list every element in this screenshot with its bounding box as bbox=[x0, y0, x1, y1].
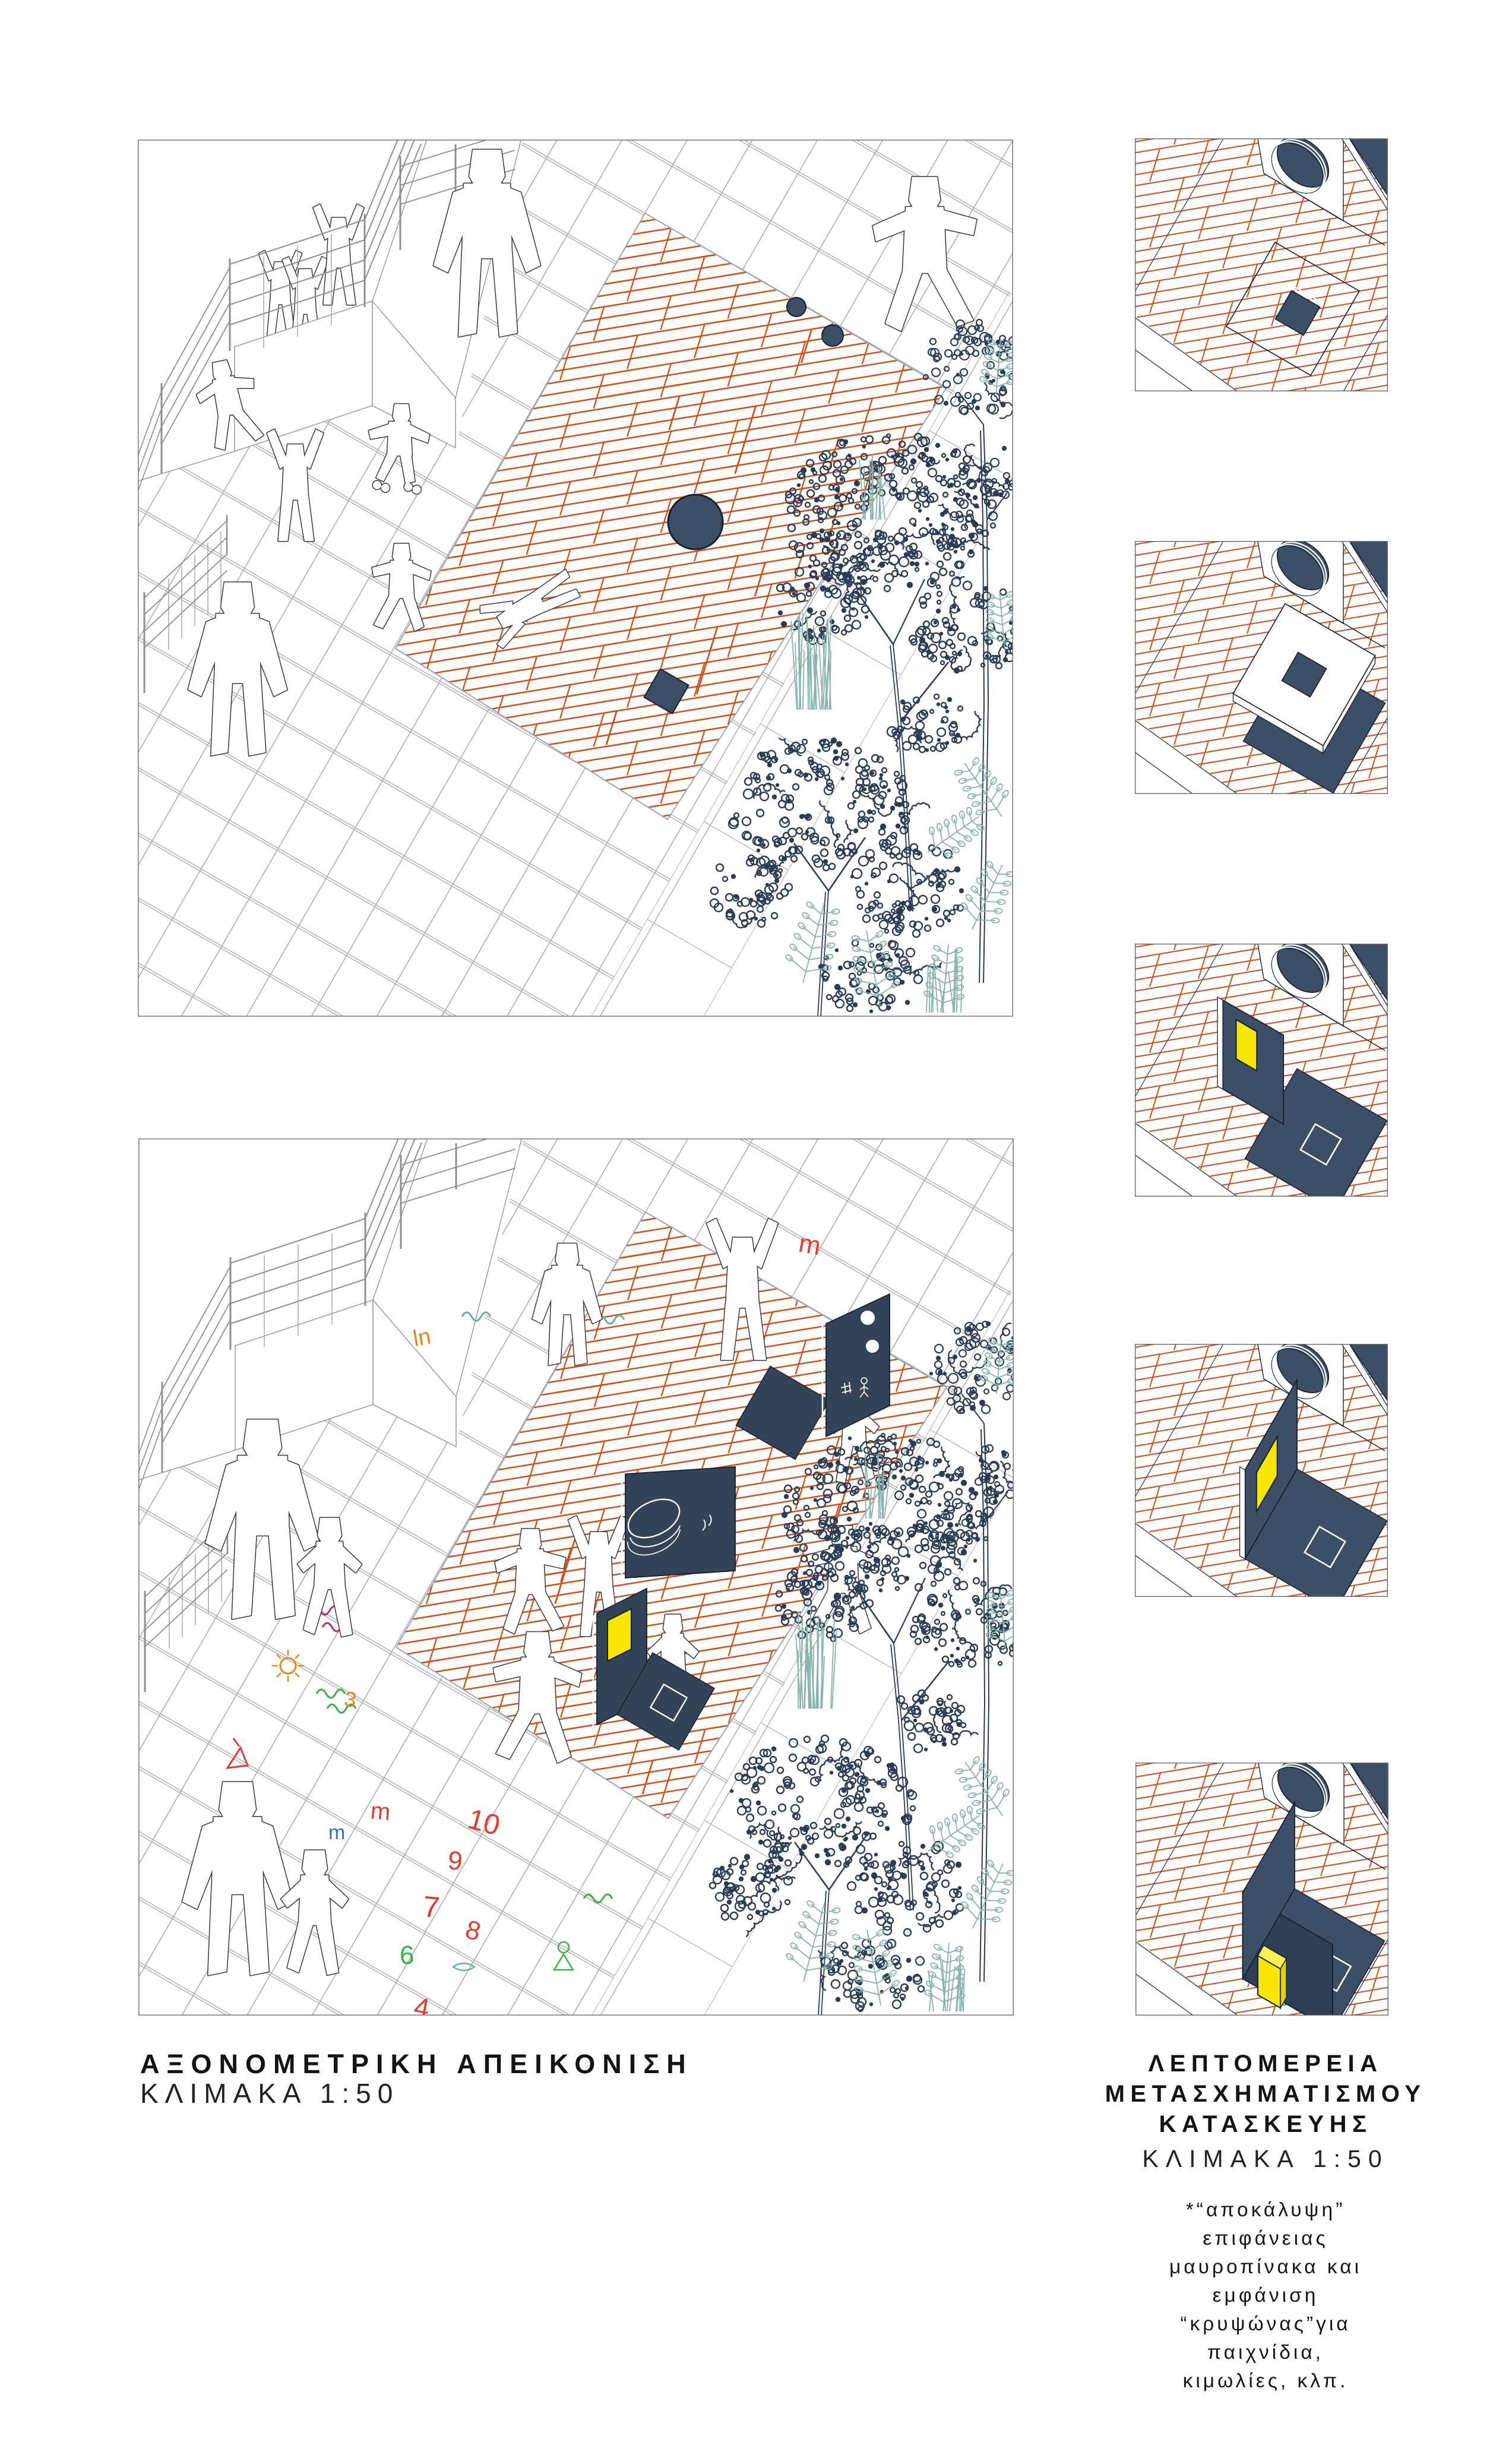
svg-text:7: 7 bbox=[422, 1890, 441, 1924]
svg-text:9: 9 bbox=[447, 1846, 464, 1876]
svg-text:6: 6 bbox=[400, 1941, 414, 1970]
svg-text:m: m bbox=[328, 1821, 345, 1844]
svg-text:m: m bbox=[369, 1798, 391, 1826]
